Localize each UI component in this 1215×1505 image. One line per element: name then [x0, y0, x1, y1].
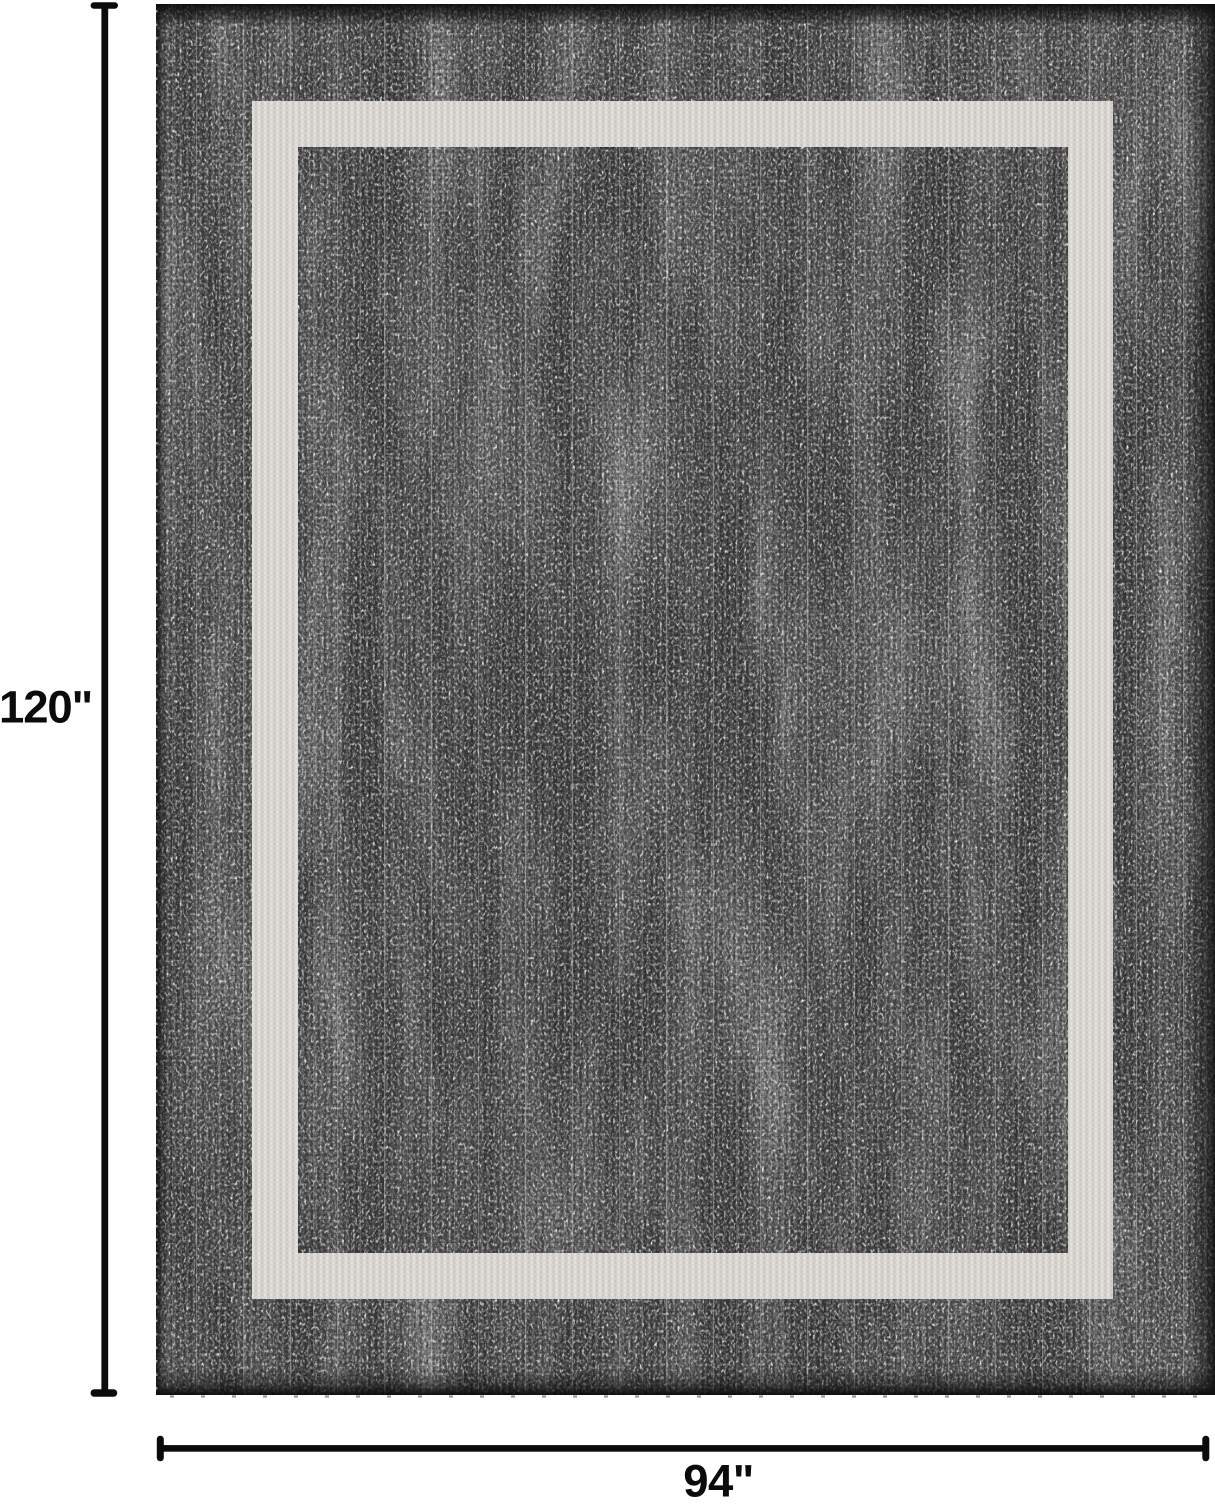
svg-text:120": 120" [0, 682, 92, 733]
svg-text:94": 94" [683, 1456, 753, 1501]
